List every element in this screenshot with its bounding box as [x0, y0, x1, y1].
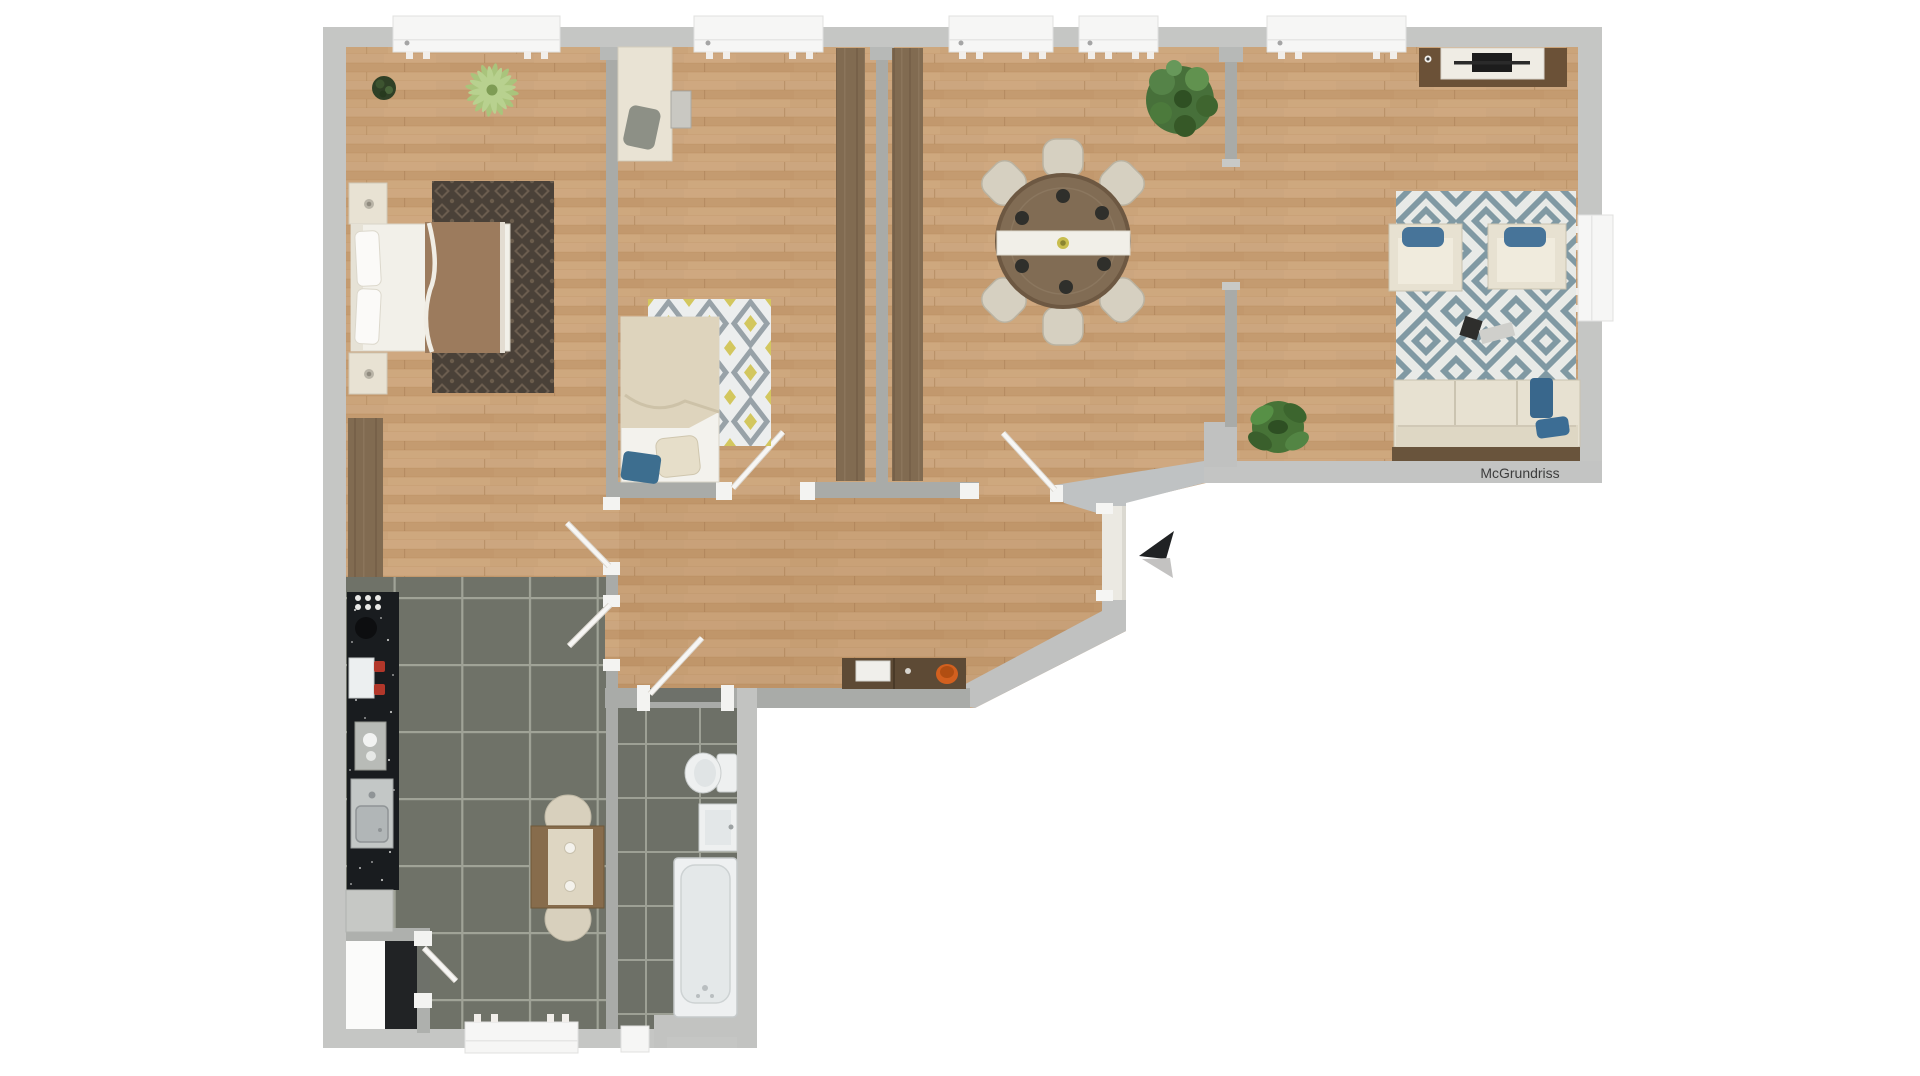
svg-text:McGrundriss: McGrundriss	[1480, 465, 1559, 481]
